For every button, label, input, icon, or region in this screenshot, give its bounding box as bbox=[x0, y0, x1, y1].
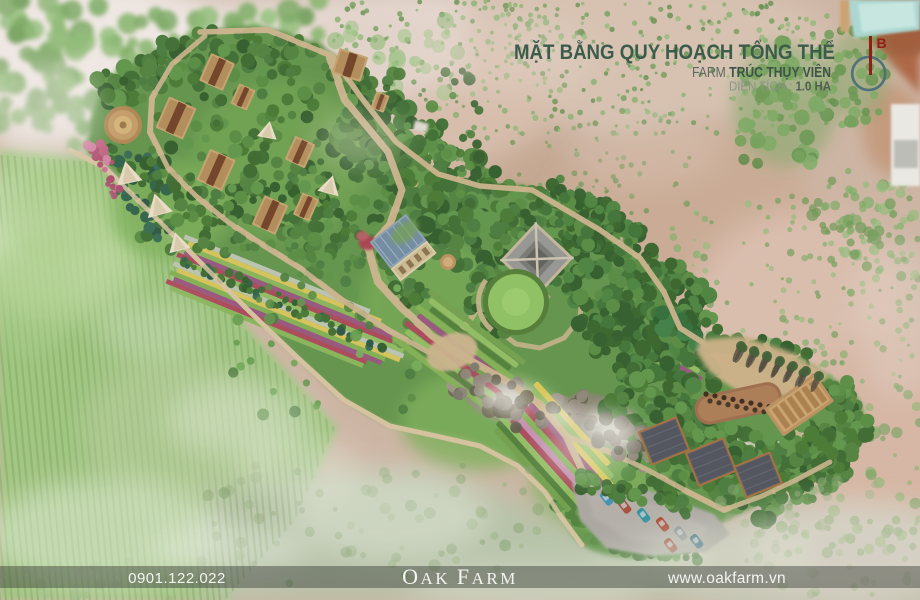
svg-text:0901.122.022: 0901.122.022 bbox=[128, 570, 226, 587]
svg-text:www.oakfarm.vn: www.oakfarm.vn bbox=[667, 570, 786, 587]
svg-text:MẶT BẰNG QUY HOẠCH TỔNG THỂ: MẶT BẰNG QUY HOẠCH TỔNG THỂ bbox=[514, 40, 835, 64]
svg-text:B: B bbox=[877, 35, 887, 51]
svg-text:DIỆN TÍCH : 1.0 HA: DIỆN TÍCH : 1.0 HA bbox=[729, 79, 832, 94]
